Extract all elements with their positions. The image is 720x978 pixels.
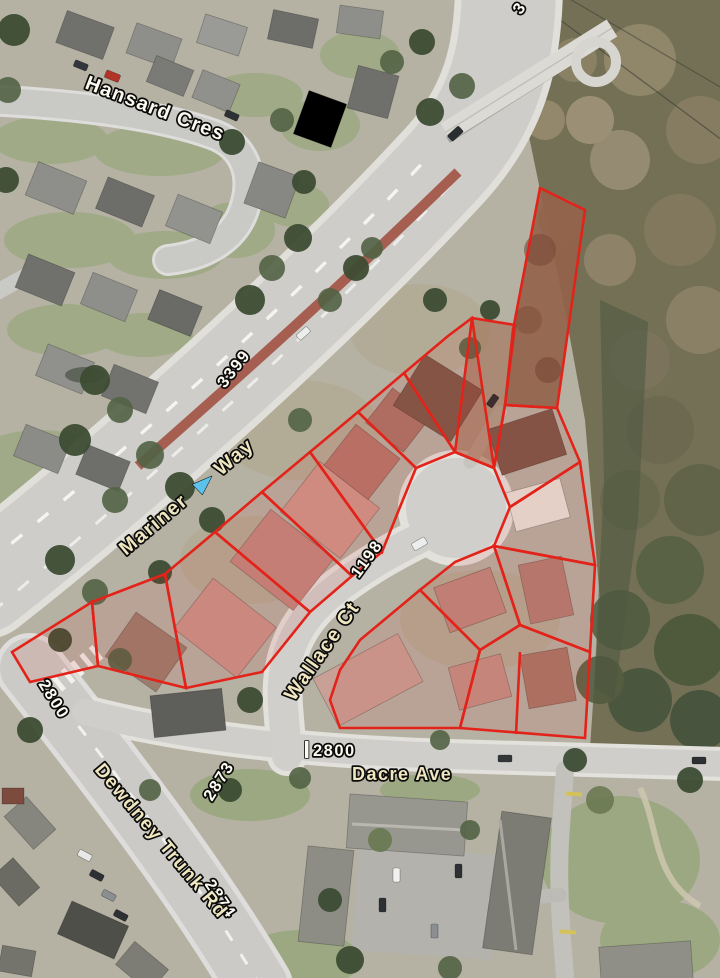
aerial-map[interactable]: Hansard Cres 3399 1198 2800 2873 2874 3 … [0, 0, 720, 978]
street-label-dacre-ave: Dacre Ave [352, 764, 452, 784]
block-tick-2800-dacre [305, 741, 309, 758]
map-viewport[interactable]: Hansard Cres 3399 1198 2800 2873 2874 3 … [0, 0, 720, 978]
block-number-2800-dacre: 2800 [313, 742, 356, 760]
